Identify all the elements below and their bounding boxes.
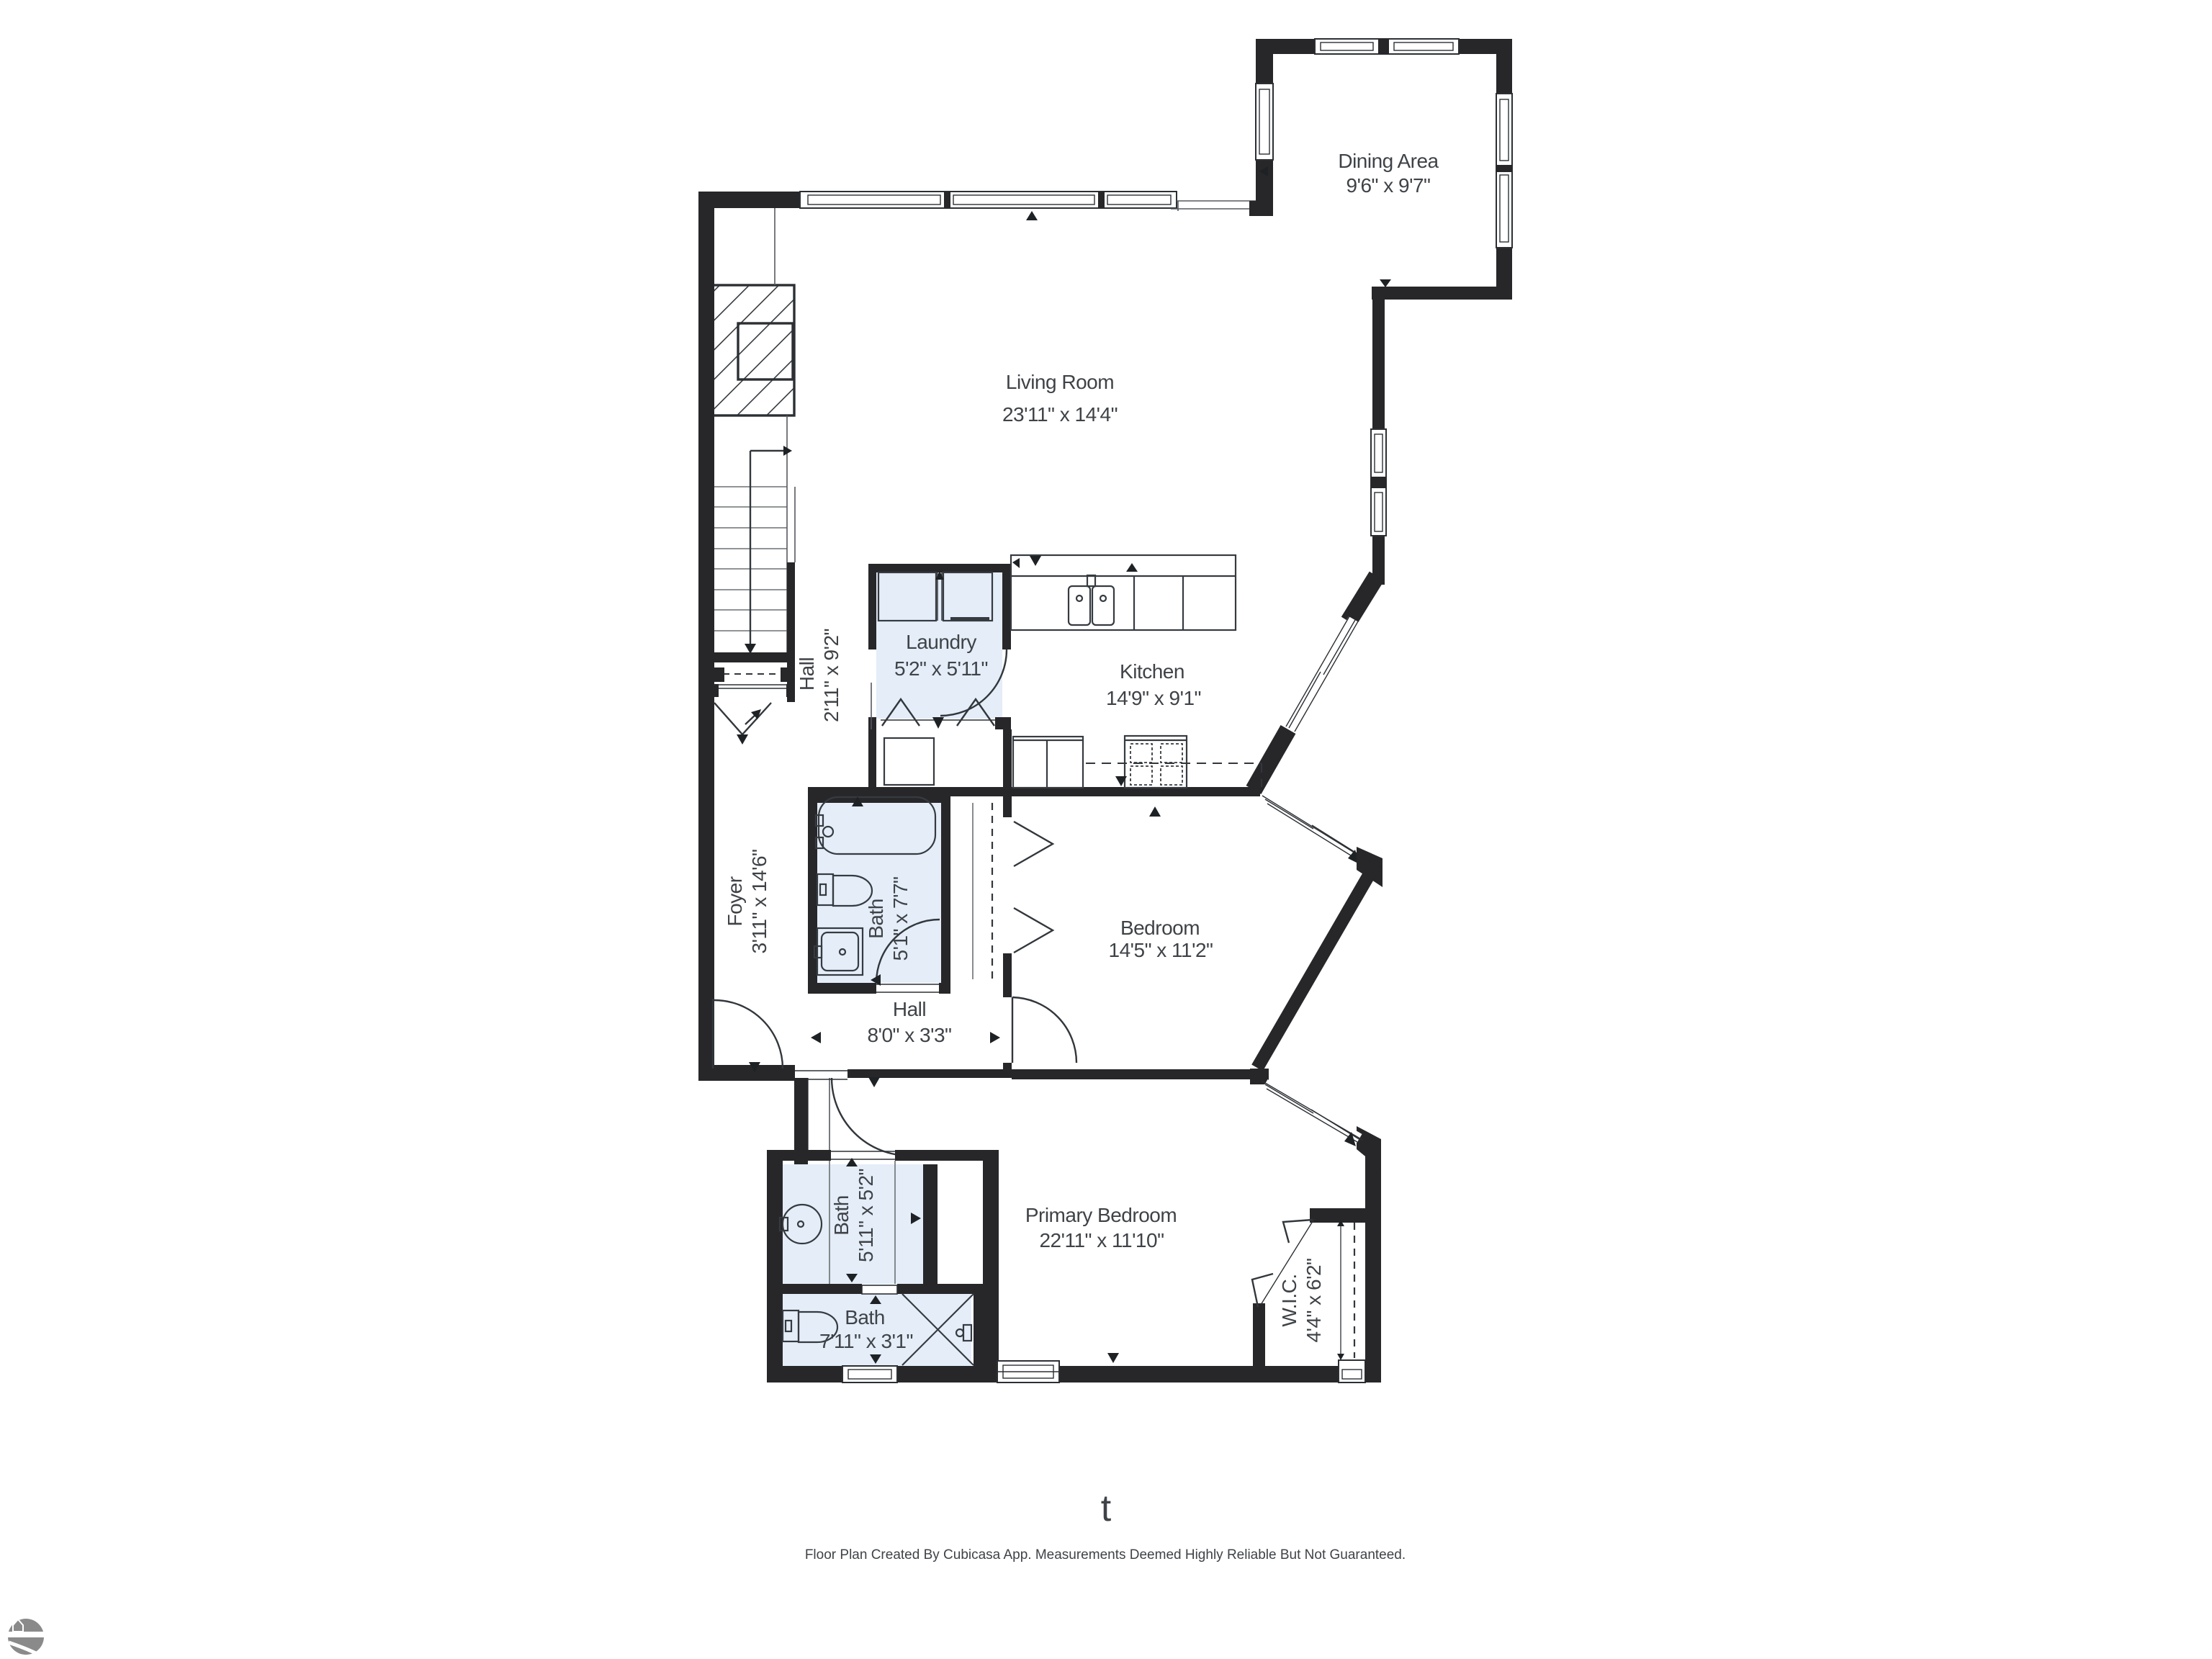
svg-text:Bedroom: Bedroom [1120,917,1200,939]
svg-text:Laundry: Laundry [906,631,976,653]
svg-text:8'0" x 3'3": 8'0" x 3'3" [868,1024,952,1046]
svg-text:Foyer: Foyer [724,876,746,926]
svg-text:Bath: Bath [830,1195,853,1236]
svg-text:Living Room: Living Room [1006,371,1114,393]
svg-text:4'4" x 6'2": 4'4" x 6'2" [1303,1259,1325,1343]
svg-text:Dining Area: Dining Area [1338,150,1439,172]
svg-text:22'11" x 11'10": 22'11" x 11'10" [1039,1229,1164,1251]
svg-text:Hall: Hall [796,657,818,691]
svg-text:3'11" x 14'6": 3'11" x 14'6" [748,850,770,954]
svg-text:Bath: Bath [865,899,887,939]
svg-text:Kitchen: Kitchen [1120,660,1184,683]
svg-text:5'1" x 7'7": 5'1" x 7'7" [889,877,912,961]
svg-text:Floor Plan Created By Cubicasa: Floor Plan Created By Cubicasa App. Meas… [805,1547,1406,1563]
svg-text:9'6" x 9'7": 9'6" x 9'7" [1346,174,1431,197]
svg-text:t: t [1101,1488,1112,1529]
svg-text:Hall: Hall [893,998,926,1020]
svg-text:Primary Bedroom: Primary Bedroom [1025,1204,1177,1226]
svg-text:14'5" x 11'2": 14'5" x 11'2" [1109,939,1213,961]
svg-text:14'9" x 9'1": 14'9" x 9'1" [1106,687,1201,709]
svg-text:2'11" x 9'2": 2'11" x 9'2" [820,629,842,722]
svg-text:W.I.C.: W.I.C. [1278,1274,1300,1326]
svg-text:23'11" x 14'4": 23'11" x 14'4" [1002,403,1118,426]
svg-text:7'11" x 3'1": 7'11" x 3'1" [819,1330,913,1352]
svg-text:5'2" x 5'11": 5'2" x 5'11" [894,657,988,680]
svg-text:5'11" x 5'2": 5'11" x 5'2" [855,1169,877,1262]
svg-text:Bath: Bath [845,1306,885,1328]
